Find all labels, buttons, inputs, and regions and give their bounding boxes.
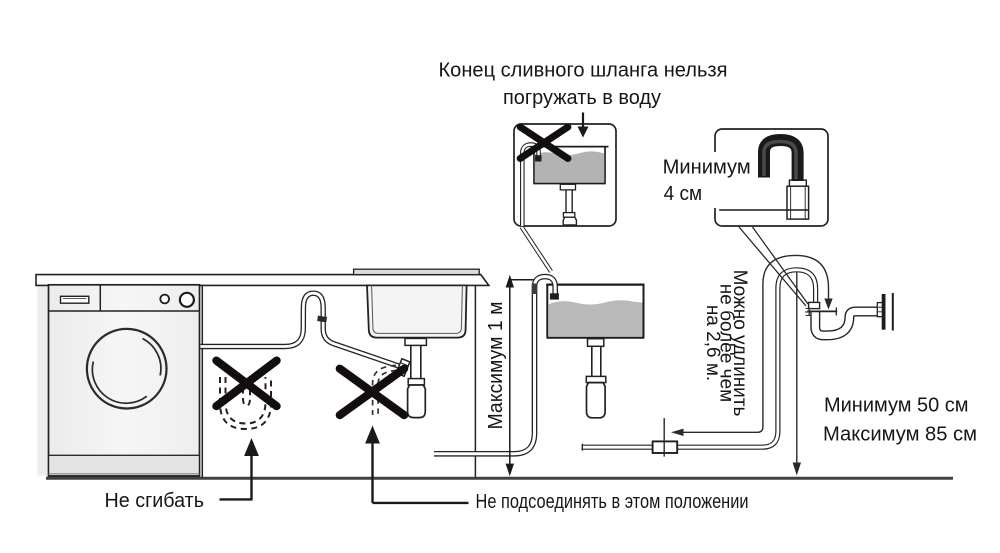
svg-text:4 см: 4 см	[664, 183, 703, 205]
svg-text:Минимум: Минимум	[663, 157, 751, 179]
svg-text:Максимум 1 м: Максимум 1 м	[485, 302, 507, 430]
svg-text:Не сгибать: Не сгибать	[105, 490, 205, 512]
svg-text:Максимум 85 см: Максимум 85 см	[823, 424, 977, 446]
svg-text:Минимум 50 см: Минимум 50 см	[824, 395, 969, 417]
svg-text:Не подсоединять в этом положен: Не подсоединять в этом положении	[476, 491, 749, 513]
svg-text:Конец сливного шланга нельзя: Конец сливного шланга нельзя	[439, 60, 728, 82]
svg-text:на 2,6 м.: на 2,6 м.	[702, 305, 723, 381]
svg-text:погружать в воду: погружать в воду	[503, 87, 661, 109]
